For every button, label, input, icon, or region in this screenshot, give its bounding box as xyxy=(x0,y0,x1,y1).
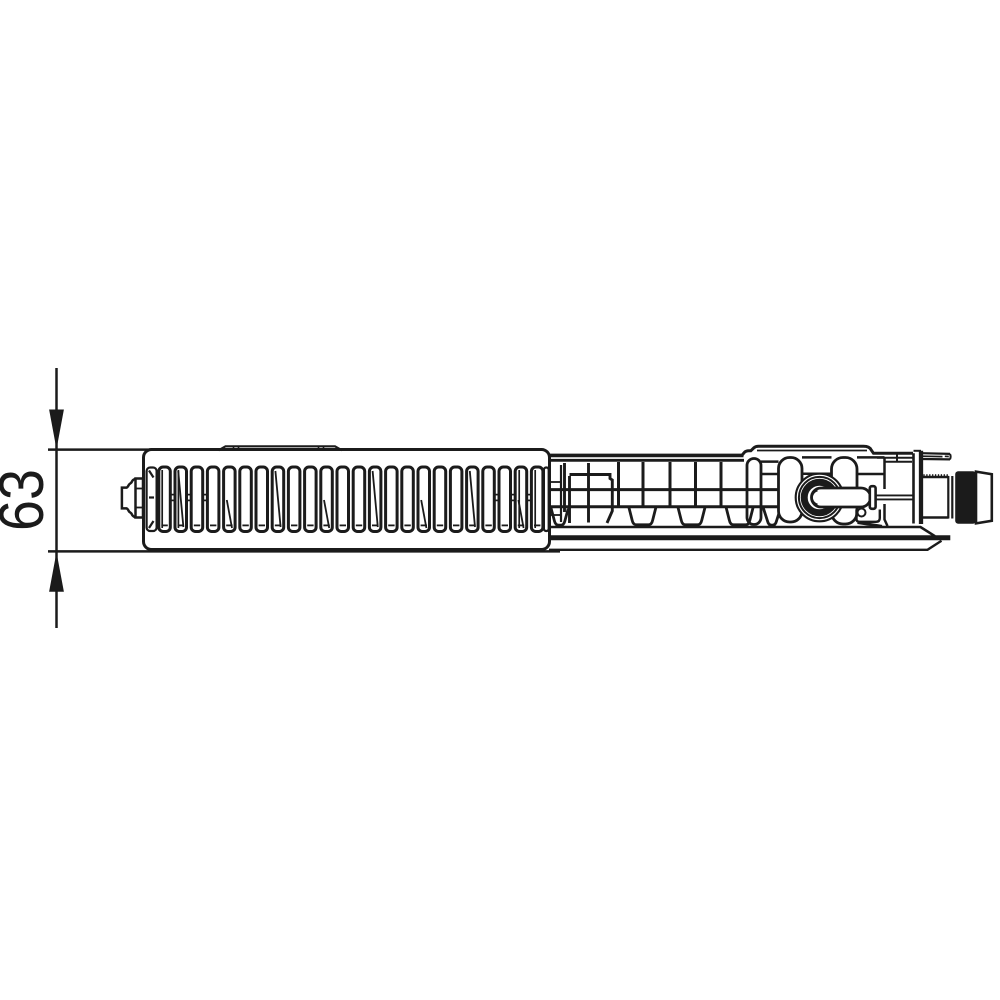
svg-text:63: 63 xyxy=(0,469,57,531)
